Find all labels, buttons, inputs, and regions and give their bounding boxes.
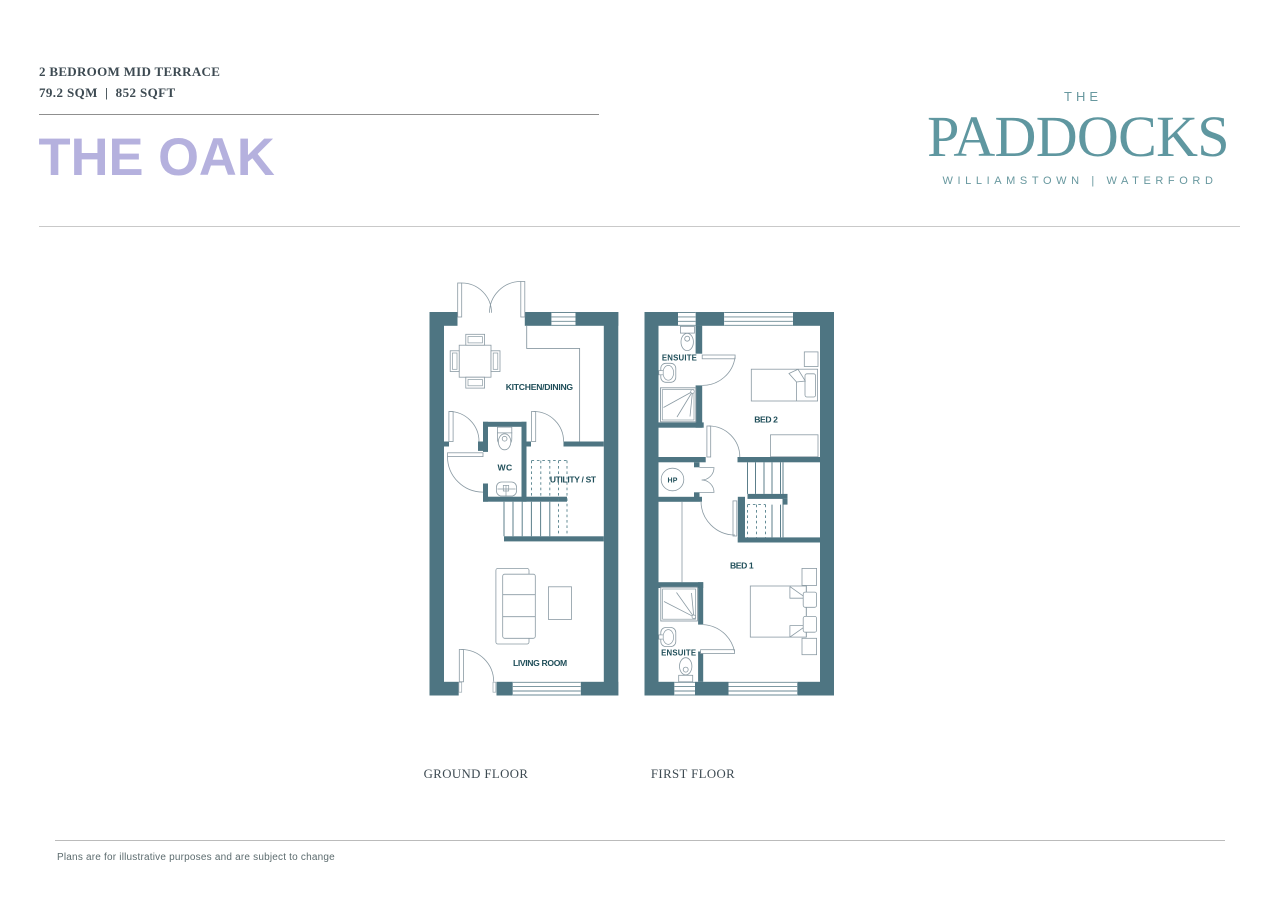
svg-text:ENSUITE: ENSUITE	[662, 353, 697, 362]
svg-text:ENSUITE: ENSUITE	[661, 649, 696, 658]
svg-text:HP: HP	[667, 478, 677, 485]
svg-text:WC: WC	[498, 463, 513, 473]
svg-text:LIVING ROOM: LIVING ROOM	[513, 658, 567, 668]
svg-text:BED 2: BED 2	[754, 415, 778, 425]
svg-text:KITCHEN/DINING: KITCHEN/DINING	[506, 382, 574, 392]
svg-text:BED 1: BED 1	[730, 561, 754, 571]
svg-text:UTILITY / ST: UTILITY / ST	[550, 475, 597, 485]
